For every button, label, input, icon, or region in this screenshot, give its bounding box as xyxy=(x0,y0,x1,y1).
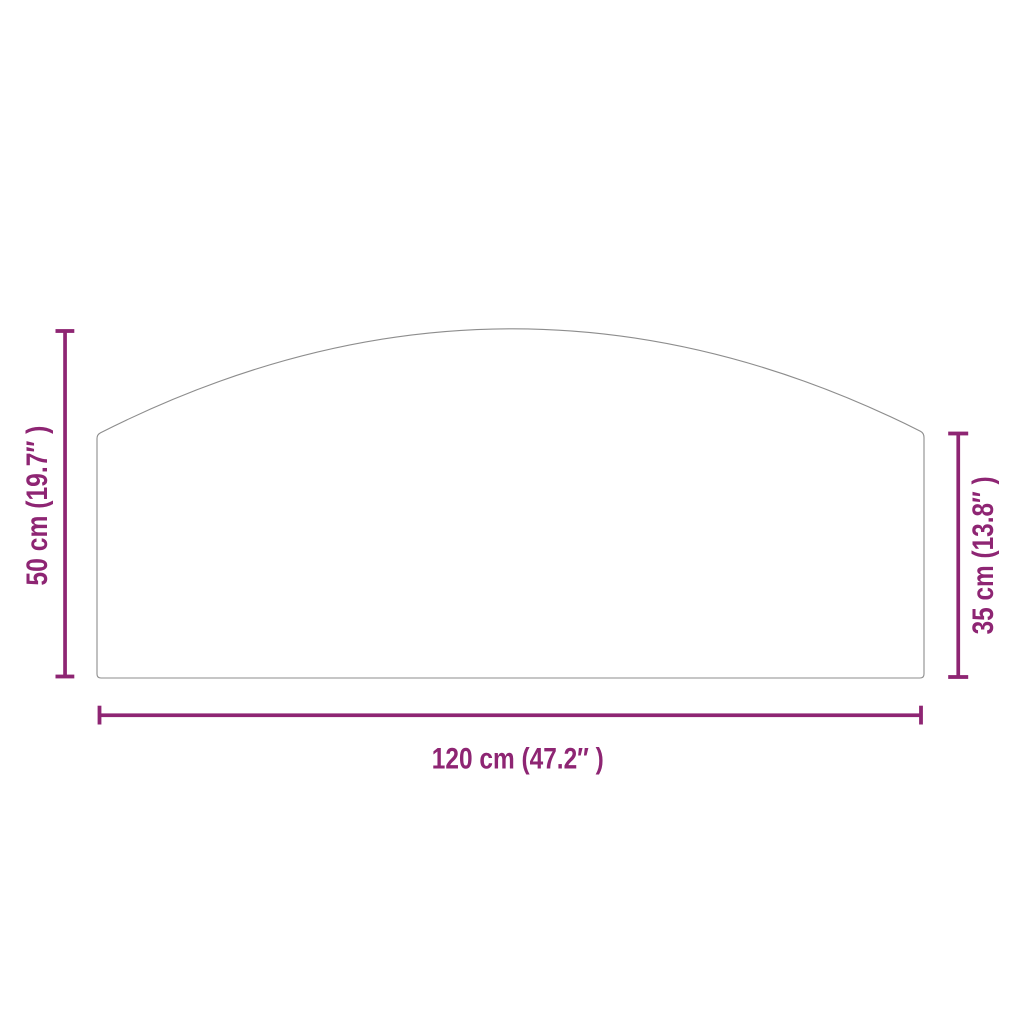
svg-text:120 cm (47.2″ ): 120 cm (47.2″ ) xyxy=(432,742,604,775)
svg-text:35 cm (13.8″ ): 35 cm (13.8″ ) xyxy=(967,476,1000,634)
svg-text:50 cm (19.7″ ): 50 cm (19.7″ ) xyxy=(21,426,54,586)
